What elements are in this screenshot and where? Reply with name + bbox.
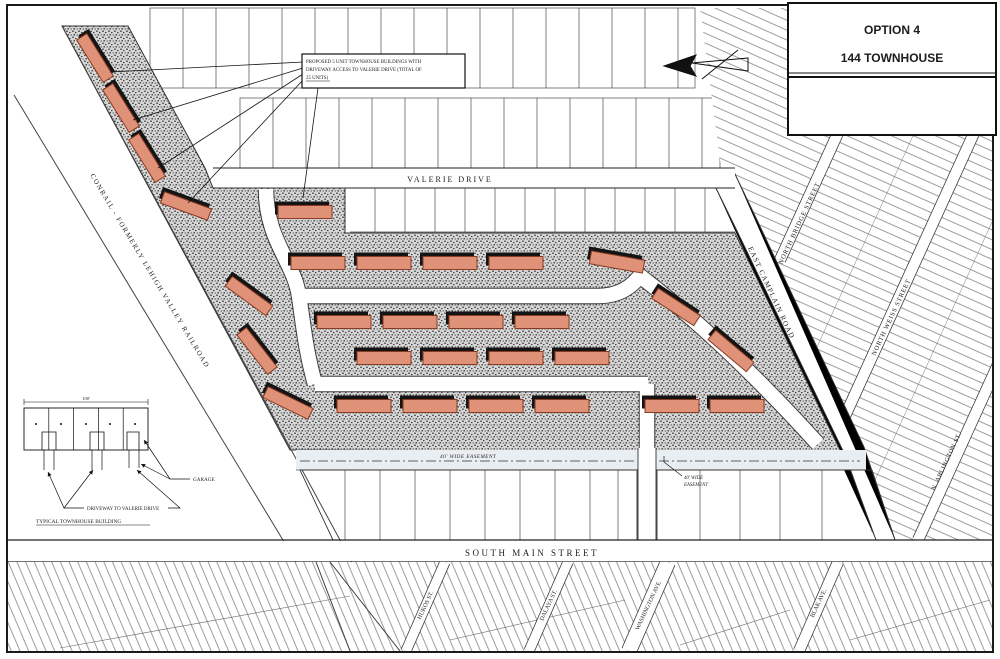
svg-text:PROPOSED 5 UNIT TOWNHOUSE BUIL: PROPOSED 5 UNIT TOWNHOUSE BUILDINGS WITH bbox=[306, 60, 421, 65]
note-box: PROPOSED 5 UNIT TOWNHOUSE BUILDINGS WITH… bbox=[302, 54, 465, 88]
title-block-name: 144 TOWNHOUSE bbox=[841, 51, 943, 65]
townhouse-building bbox=[314, 312, 371, 329]
townhouse-building bbox=[642, 396, 699, 413]
townhouse-building bbox=[400, 396, 457, 413]
townhouse-building bbox=[420, 253, 477, 270]
townhouse-building bbox=[288, 253, 345, 270]
detail-caption: TYPICAL TOWNHOUSE BUILDING bbox=[36, 519, 121, 525]
townhouse-building bbox=[486, 348, 543, 365]
townhouse-building bbox=[354, 253, 411, 270]
townhouse-building bbox=[334, 396, 391, 413]
townhouse-building bbox=[380, 312, 437, 329]
title-block: OPTION 4 144 TOWNHOUSE bbox=[788, 3, 996, 135]
townhouse-building bbox=[354, 348, 411, 365]
townhouse-building bbox=[552, 348, 609, 365]
street-label-valerie: VALERIE DRIVE bbox=[407, 175, 493, 184]
south-blocks bbox=[8, 562, 992, 651]
easement-label-center: 40' WIDE EASEMENT bbox=[440, 453, 497, 460]
townhouse-building bbox=[446, 312, 503, 329]
street-label-south-main: SOUTH MAIN STREET bbox=[465, 548, 599, 558]
townhouse-building bbox=[466, 396, 523, 413]
title-block-option: OPTION 4 bbox=[864, 23, 920, 37]
svg-text:GARAGE: GARAGE bbox=[193, 477, 215, 483]
svg-text:DRIVEWAY TO VALERIE DRIVE: DRIVEWAY TO VALERIE DRIVE bbox=[87, 507, 159, 512]
townhouse-building bbox=[275, 202, 332, 219]
site-plan-svg: NORTH BRIDGE STREET NORTH WEISS STREET N… bbox=[0, 0, 1000, 659]
svg-text:EASEMENT: EASEMENT bbox=[683, 483, 708, 488]
townhouse-building bbox=[486, 253, 543, 270]
site-plan-page: NORTH BRIDGE STREET NORTH WEISS STREET N… bbox=[0, 0, 1000, 659]
townhouse-building bbox=[512, 312, 569, 329]
svg-text:DRIVEWAY ACCESS TO VALERIE DRI: DRIVEWAY ACCESS TO VALERIE DRIVE (TOTAL … bbox=[306, 68, 422, 73]
townhouse-building bbox=[420, 348, 477, 365]
svg-text:100': 100' bbox=[82, 396, 90, 401]
townhouse-building bbox=[707, 396, 764, 413]
svg-text:25 UNITS): 25 UNITS) bbox=[306, 76, 329, 81]
townhouse-building bbox=[532, 396, 589, 413]
